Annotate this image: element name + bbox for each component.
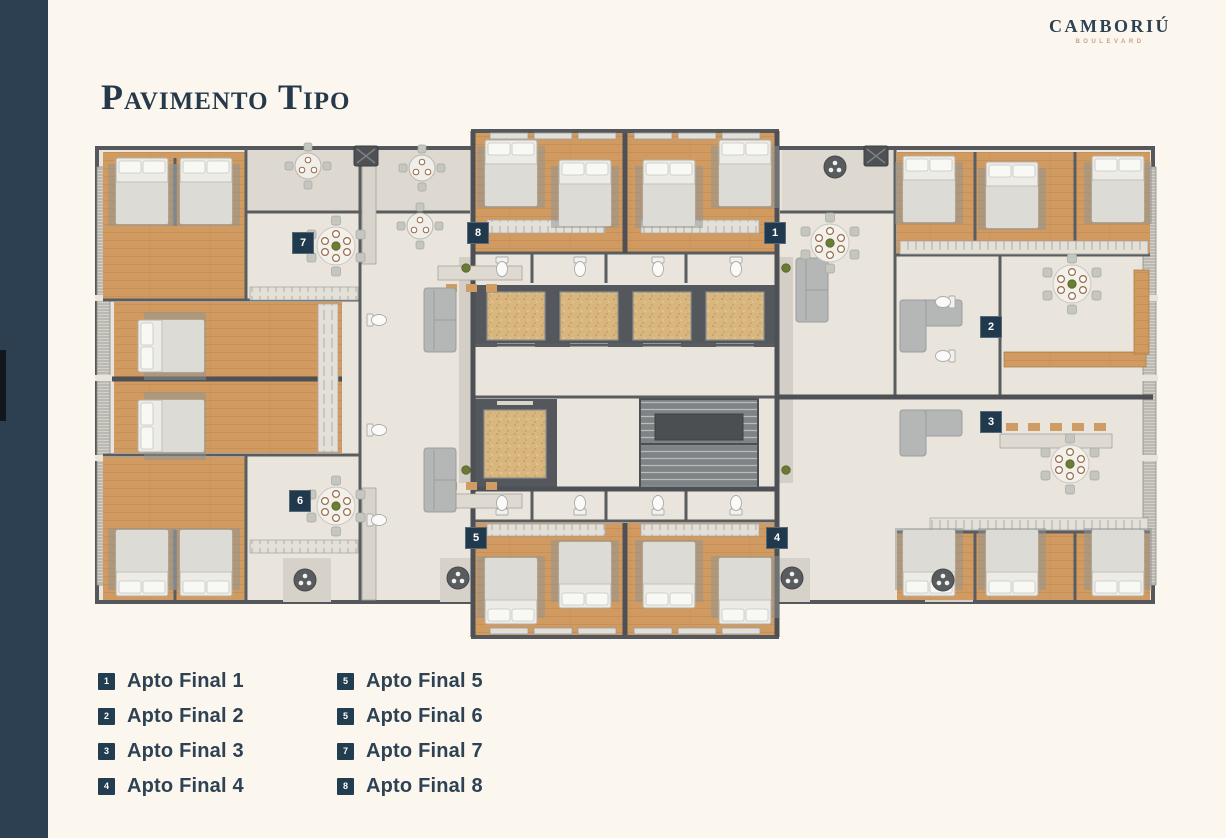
- legend-label-6: Apto Final 6: [366, 705, 483, 728]
- unit-marker-4[interactable]: 4: [766, 527, 788, 549]
- legend-badge-4: 4: [98, 778, 115, 795]
- legend-column-right: 5 Apto Final 5 5 Apto Final 6 7 Apto Fin…: [337, 669, 483, 809]
- legend-label-8: Apto Final 8: [366, 775, 483, 798]
- unit-marker-2[interactable]: 2: [980, 316, 1002, 338]
- legend-badge-6: 5: [337, 708, 354, 725]
- unit-marker-3[interactable]: 3: [980, 411, 1002, 433]
- legend-label-2: Apto Final 2: [127, 705, 244, 728]
- legend-label-7: Apto Final 7: [366, 740, 483, 763]
- legend-item-2: 2 Apto Final 2: [98, 704, 337, 728]
- stairs: [640, 399, 758, 489]
- legend-label-1: Apto Final 1: [127, 670, 244, 693]
- legend-label-5: Apto Final 5: [366, 670, 483, 693]
- legend-badge-3: 3: [98, 743, 115, 760]
- legend-label-3: Apto Final 3: [127, 740, 244, 763]
- legend-item-3: 3 Apto Final 3: [98, 739, 337, 763]
- legend-column-left: 1 Apto Final 1 2 Apto Final 2 3 Apto Fin…: [98, 669, 337, 809]
- unit-marker-1[interactable]: 1: [764, 222, 786, 244]
- legend-item-8: 8 Apto Final 8: [337, 774, 483, 798]
- legend-badge-5: 5: [337, 673, 354, 690]
- legend: 1 Apto Final 1 2 Apto Final 2 3 Apto Fin…: [98, 669, 483, 809]
- legend-badge-2: 2: [98, 708, 115, 725]
- legend-item-5: 5 Apto Final 5: [337, 669, 483, 693]
- legend-badge-8: 8: [337, 778, 354, 795]
- legend-item-6: 5 Apto Final 6: [337, 704, 483, 728]
- unit-marker-8[interactable]: 8: [467, 222, 489, 244]
- legend-item-7: 7 Apto Final 7: [337, 739, 483, 763]
- unit-marker-6[interactable]: 6: [289, 490, 311, 512]
- unit-marker-5[interactable]: 5: [465, 527, 487, 549]
- legend-badge-1: 1: [98, 673, 115, 690]
- legend-item-1: 1 Apto Final 1: [98, 669, 337, 693]
- legend-label-4: Apto Final 4: [127, 775, 244, 798]
- legend-item-4: 4 Apto Final 4: [98, 774, 337, 798]
- legend-badge-7: 7: [337, 743, 354, 760]
- unit-marker-7[interactable]: 7: [292, 232, 314, 254]
